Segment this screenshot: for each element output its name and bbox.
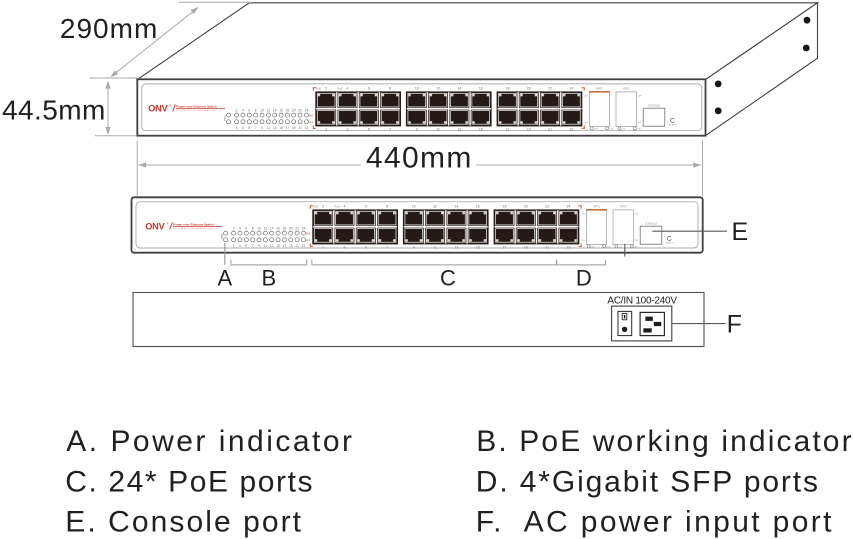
svg-text:B. PoE working indicator: B. PoE working indicator: [476, 425, 851, 458]
svg-text:C: C: [440, 265, 456, 290]
svg-text:F. AC power input port: F. AC power input port: [476, 506, 832, 539]
svg-text:440mm: 440mm: [366, 142, 472, 175]
svg-text:D. 4*Gigabit SFP ports: D. 4*Gigabit SFP ports: [476, 466, 818, 499]
svg-text:E: E: [732, 218, 749, 246]
svg-text:AC/IN 100-240V: AC/IN 100-240V: [607, 296, 677, 307]
svg-text:B: B: [261, 265, 276, 290]
svg-text:44.5mm: 44.5mm: [2, 95, 105, 126]
svg-text:F: F: [727, 311, 742, 339]
svg-text:D: D: [576, 265, 592, 290]
svg-text:A: A: [217, 265, 232, 290]
svg-text:E. Console port: E. Console port: [65, 506, 301, 539]
svg-text:C. 24* PoE ports: C. 24* PoE ports: [65, 466, 312, 499]
svg-text:290mm: 290mm: [60, 13, 157, 44]
